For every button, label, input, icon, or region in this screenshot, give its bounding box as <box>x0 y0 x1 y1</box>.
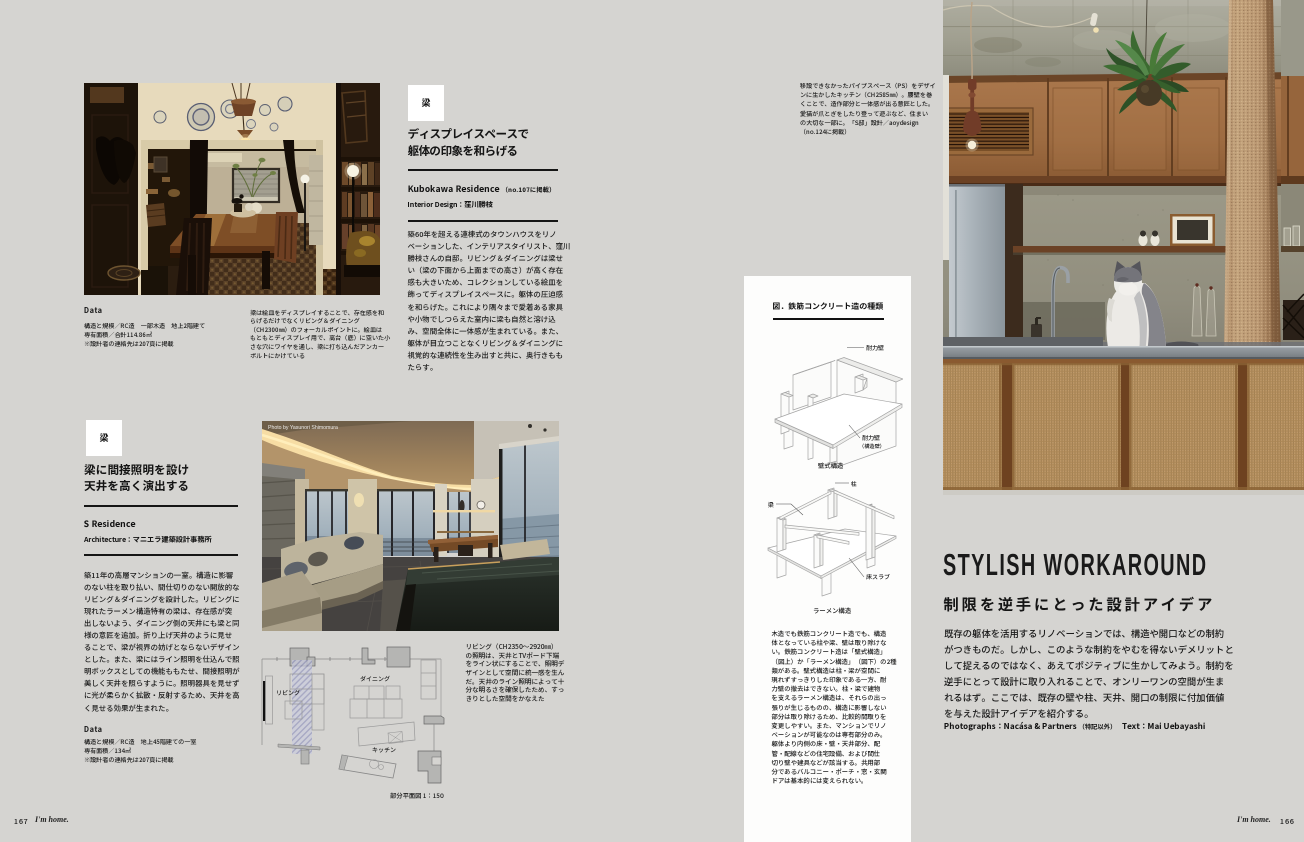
svg-text:耐力壁: 耐力壁 <box>866 343 884 352</box>
svg-text:耐力壁: 耐力壁 <box>862 433 880 442</box>
svg-text:（構造壁）: （構造壁） <box>859 443 885 450</box>
svg-text:床スラブ: 床スラブ <box>866 572 890 581</box>
svg-text:リビング: リビング <box>276 688 300 697</box>
svg-text:ダイニング: ダイニング <box>360 674 390 683</box>
svg-text:キッチン: キッチン <box>372 745 396 754</box>
svg-text:Photo by Yasunori Shimomura: Photo by Yasunori Shimomura <box>268 425 338 431</box>
svg-text:柱: 柱 <box>851 479 858 488</box>
svg-text:梁: 梁 <box>767 500 774 509</box>
